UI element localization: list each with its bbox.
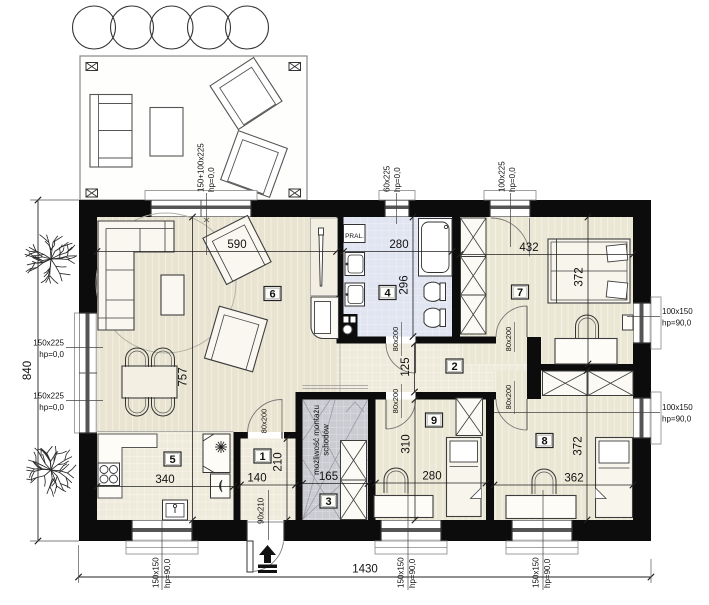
svg-text:7: 7 bbox=[517, 287, 523, 299]
svg-text:280: 280 bbox=[422, 471, 441, 483]
svg-text:432: 432 bbox=[519, 242, 538, 254]
svg-text:80x200: 80x200 bbox=[260, 409, 269, 434]
svg-text:2: 2 bbox=[451, 361, 457, 373]
svg-text:150x150: 150x150 bbox=[152, 557, 161, 588]
svg-text:hp=0,0: hp=0,0 bbox=[508, 167, 517, 192]
svg-text:150x150: 150x150 bbox=[397, 557, 406, 588]
svg-text:150+100x225: 150+100x225 bbox=[197, 143, 206, 192]
svg-text:362: 362 bbox=[564, 473, 583, 485]
svg-text:6: 6 bbox=[269, 289, 275, 301]
svg-text:100x225: 100x225 bbox=[498, 161, 507, 192]
svg-text:9: 9 bbox=[431, 415, 437, 427]
svg-text:hp=90,0: hp=90,0 bbox=[543, 558, 552, 588]
svg-text:schodów: schodów bbox=[322, 424, 331, 456]
svg-text:80x200: 80x200 bbox=[504, 385, 513, 410]
svg-text:590: 590 bbox=[227, 239, 246, 251]
svg-text:757: 757 bbox=[178, 367, 190, 386]
svg-text:280: 280 bbox=[389, 239, 408, 251]
svg-text:3: 3 bbox=[325, 496, 331, 508]
svg-text:hp=90,0: hp=90,0 bbox=[662, 319, 692, 328]
svg-text:150x150: 150x150 bbox=[532, 557, 541, 588]
svg-text:296: 296 bbox=[399, 275, 411, 294]
svg-text:1: 1 bbox=[259, 451, 265, 463]
svg-text:310: 310 bbox=[401, 434, 413, 453]
svg-text:165: 165 bbox=[319, 471, 338, 483]
svg-text:840: 840 bbox=[22, 361, 34, 380]
svg-text:90x210: 90x210 bbox=[257, 497, 266, 524]
svg-text:możliwość montażu: możliwość montażu bbox=[312, 405, 321, 475]
svg-text:4: 4 bbox=[384, 288, 391, 300]
svg-text:80x200: 80x200 bbox=[504, 327, 513, 352]
svg-text:8: 8 bbox=[541, 436, 547, 448]
svg-text:hp=0,0: hp=0,0 bbox=[39, 350, 64, 359]
svg-text:PRAL.: PRAL. bbox=[345, 233, 364, 240]
svg-text:hp=0,0: hp=0,0 bbox=[39, 403, 64, 412]
svg-text:100x150: 100x150 bbox=[662, 307, 693, 316]
svg-text:372: 372 bbox=[574, 267, 586, 286]
svg-text:1430: 1430 bbox=[352, 564, 378, 576]
svg-text:hp=0,0: hp=0,0 bbox=[207, 167, 216, 192]
svg-text:140: 140 bbox=[247, 473, 266, 485]
svg-text:210: 210 bbox=[273, 452, 285, 471]
svg-text:hp=90,0: hp=90,0 bbox=[662, 415, 692, 424]
svg-text:5: 5 bbox=[169, 454, 175, 466]
svg-text:372: 372 bbox=[573, 436, 585, 455]
svg-text:hp=90,0: hp=90,0 bbox=[163, 558, 172, 588]
svg-text:hp=90,0: hp=90,0 bbox=[408, 558, 417, 588]
svg-text:60x225: 60x225 bbox=[383, 165, 392, 192]
svg-text:80x200: 80x200 bbox=[391, 389, 400, 414]
svg-text:125: 125 bbox=[400, 357, 412, 376]
svg-text:340: 340 bbox=[155, 474, 174, 486]
svg-text:100x150: 100x150 bbox=[662, 403, 693, 412]
svg-text:80x200: 80x200 bbox=[391, 327, 400, 352]
svg-text:hp=0,0: hp=0,0 bbox=[393, 167, 402, 192]
